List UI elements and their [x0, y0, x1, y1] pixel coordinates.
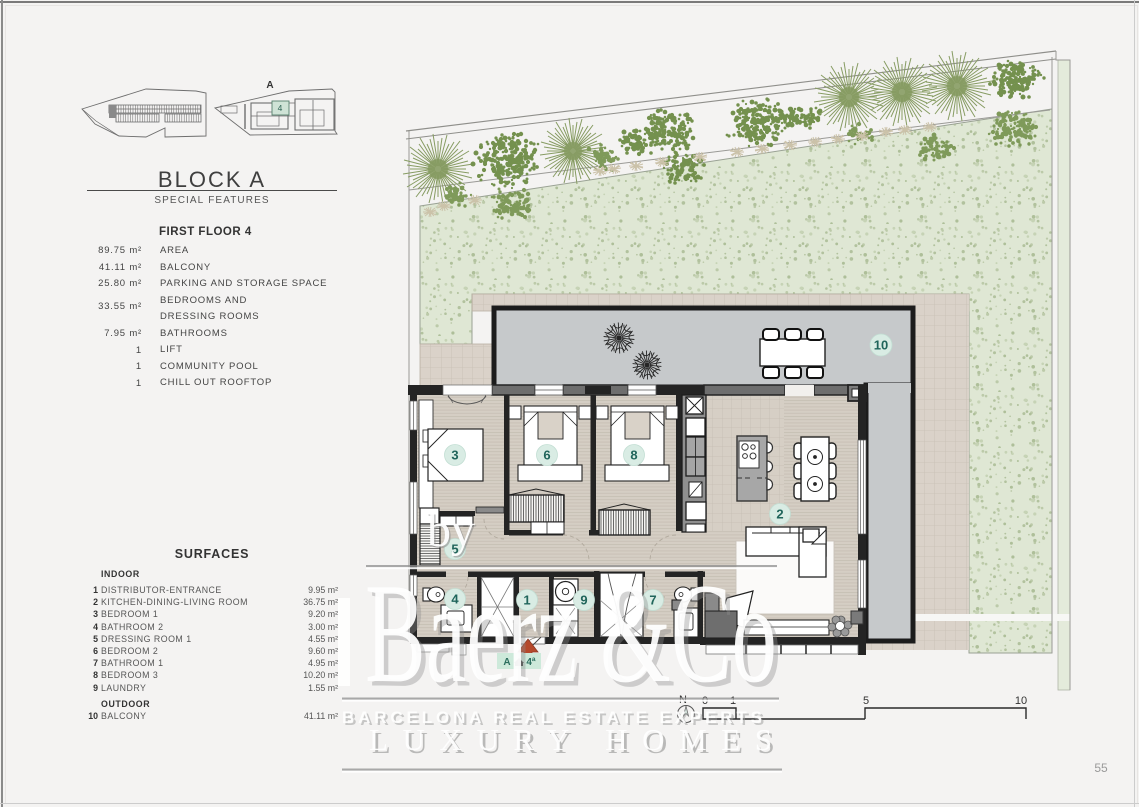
svg-text:by: by — [427, 504, 475, 557]
svg-text:LUXURY HOMES: LUXURY HOMES — [372, 725, 775, 760]
svg-text:Baerz &Co: Baerz &Co — [365, 554, 777, 712]
